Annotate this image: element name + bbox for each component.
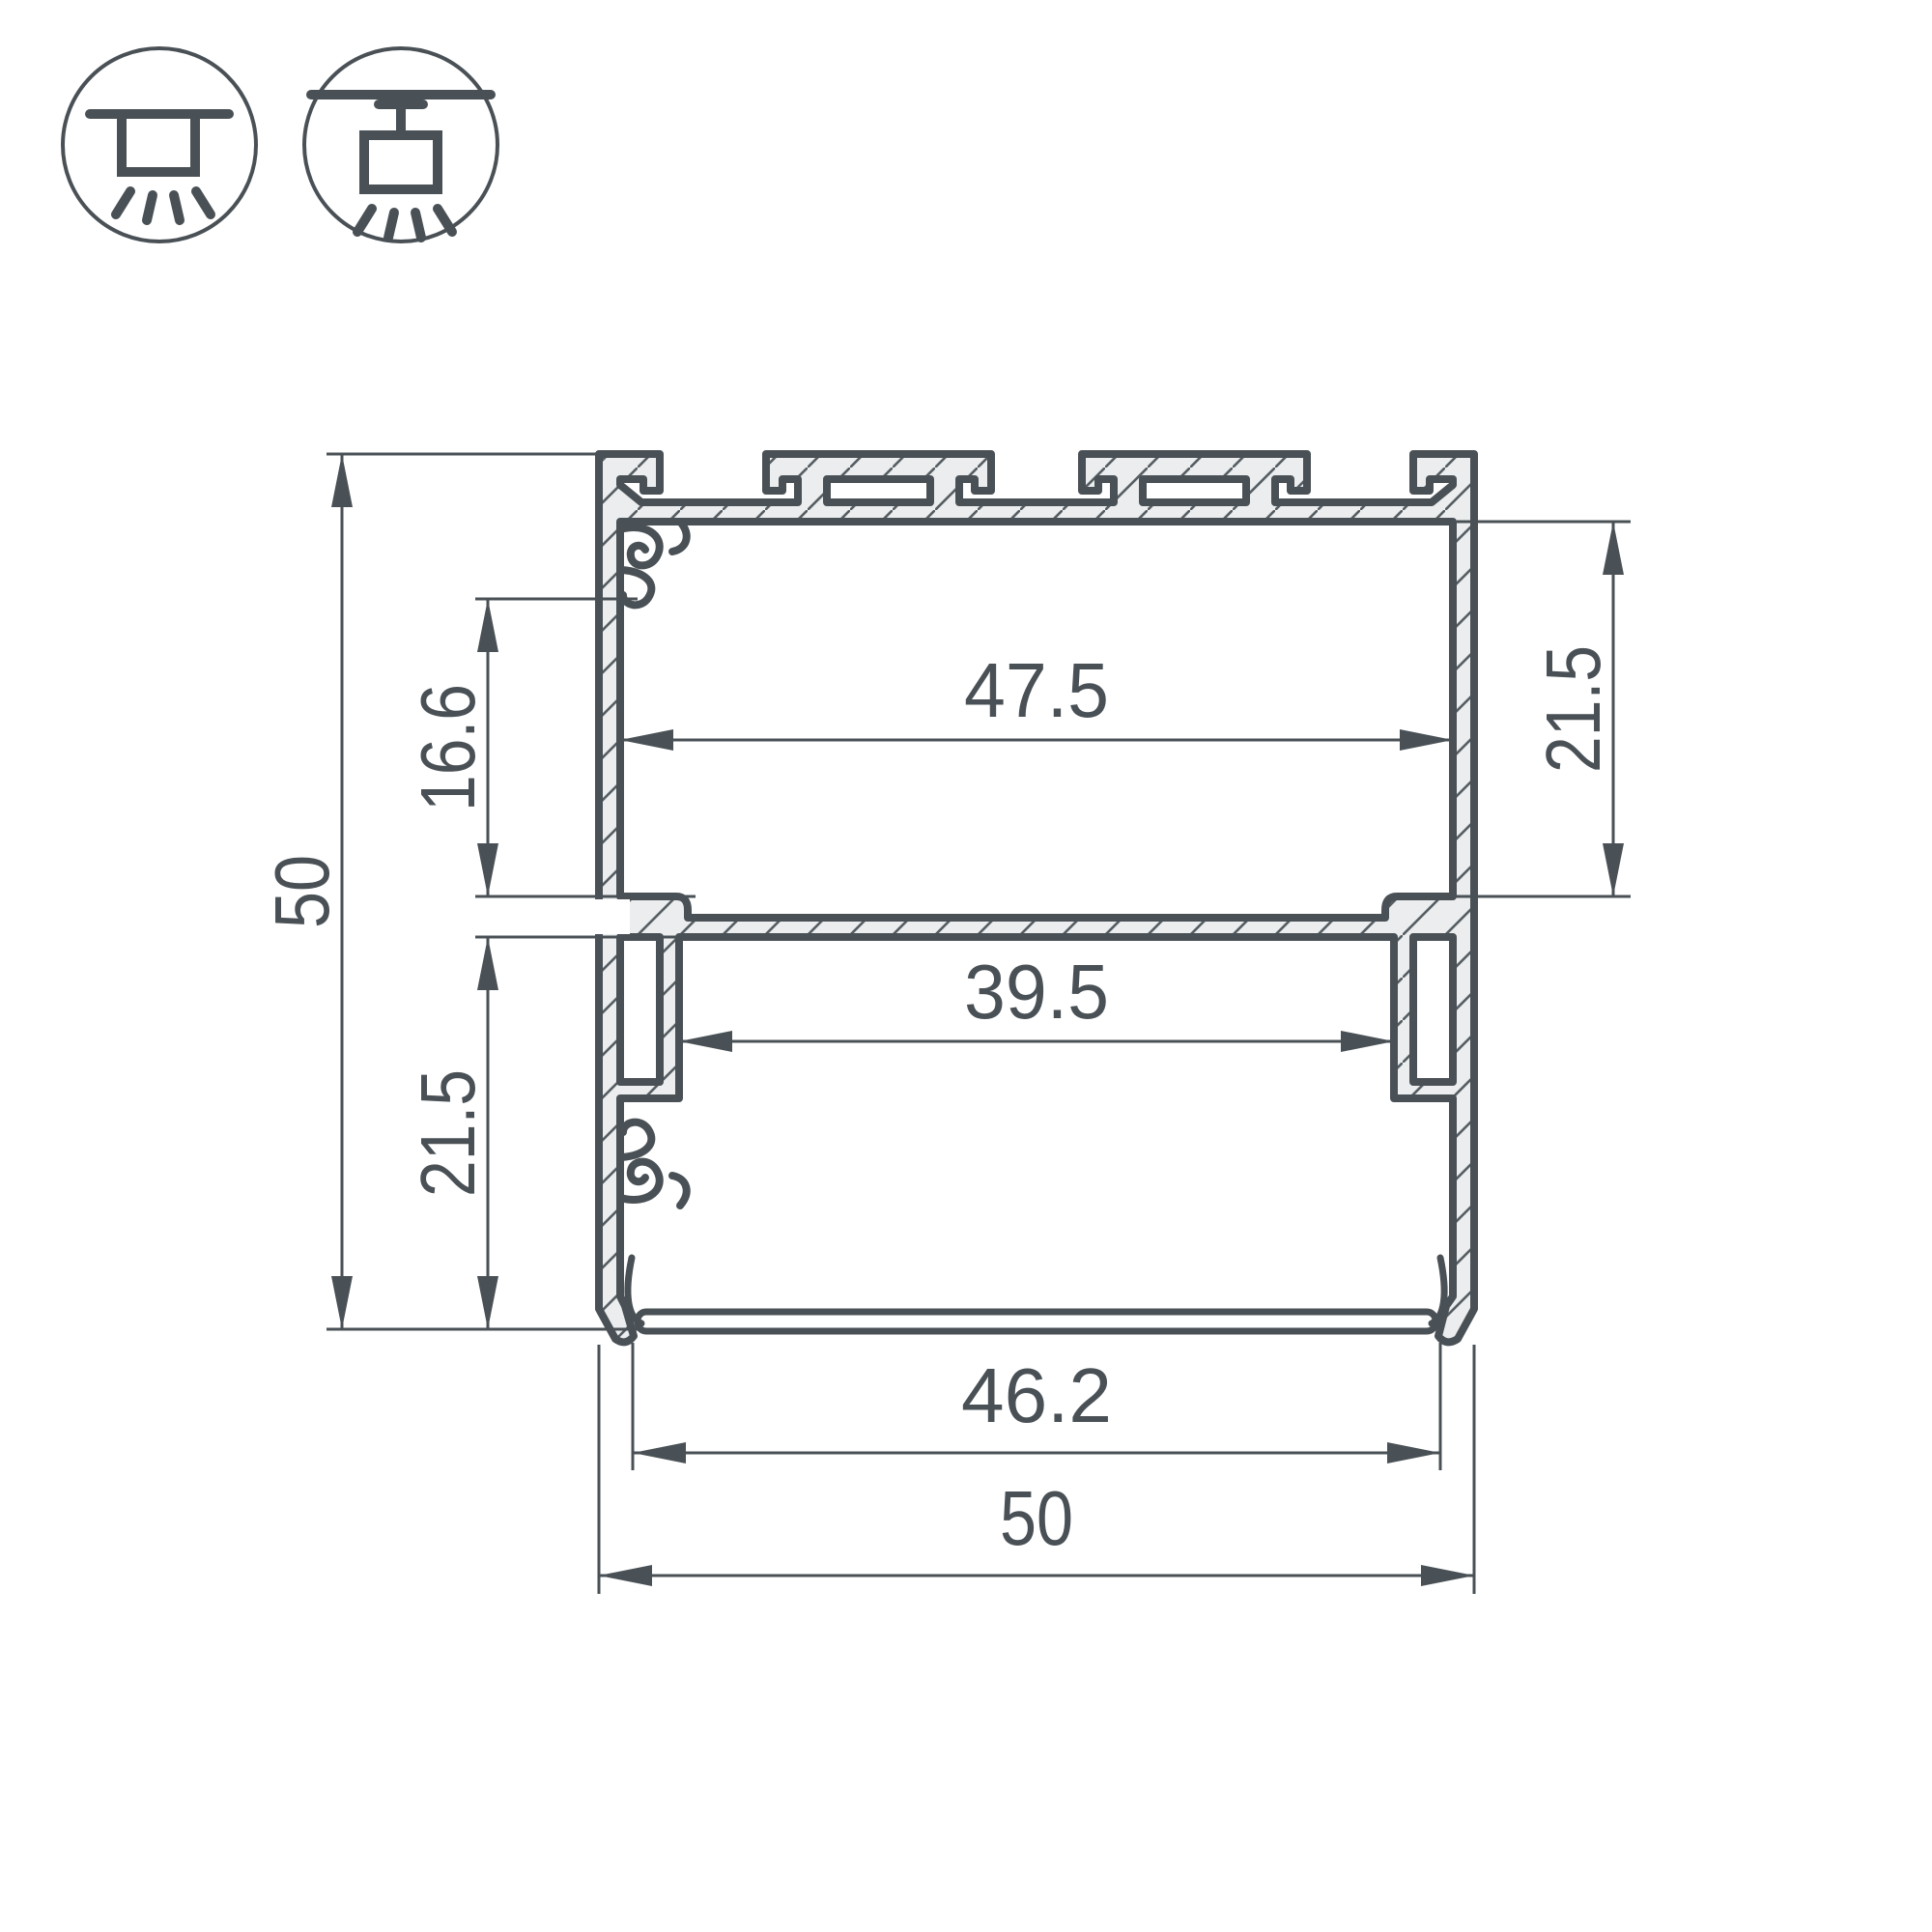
luminaire-box [364, 135, 438, 189]
arrowhead-down [1603, 843, 1624, 896]
dim-label-cavity-height: 21.5 [1530, 645, 1616, 773]
arrowhead-down [331, 1276, 353, 1329]
pendant-mount-icon [304, 48, 497, 241]
dim-label-overall-height: 50 [259, 855, 345, 928]
clip-curl-bottom-left [620, 1122, 687, 1206]
technical-drawing-page: 50 16.6 21.5 47.5 [0, 0, 1932, 1932]
arrowhead-left [599, 1565, 652, 1586]
arrowhead-left [679, 1031, 732, 1052]
profile-body [589, 454, 1932, 1342]
dim-overall-height: 50 [259, 454, 645, 1329]
wall-break-band [589, 899, 630, 934]
arrowhead-right [1421, 1565, 1474, 1586]
dim-inner-width-lower: 39.5 [679, 949, 1394, 1057]
profile-cross-section [599, 454, 1474, 1342]
dim-upper-inset-left: 16.6 [405, 599, 696, 896]
arrowhead-right [1400, 729, 1453, 751]
arrowhead-left [620, 729, 673, 751]
dim-inner-width-top: 47.5 [620, 647, 1453, 751]
dimension-annotations: 50 16.6 21.5 47.5 [259, 454, 1631, 1594]
arrowhead-right [1341, 1031, 1394, 1052]
profile-drawing-canvas: 50 16.6 21.5 47.5 [0, 0, 1932, 1932]
arrowhead-down [477, 843, 498, 896]
arrowhead-down [477, 1276, 498, 1329]
luminaire-box [122, 114, 195, 172]
dim-cavity-height-right: 21.5 [1399, 522, 1631, 896]
arrowhead-up [1603, 522, 1624, 575]
dim-diffuser-width: 46.2 [633, 1343, 1440, 1470]
dim-label-overall-width: 50 [1000, 1475, 1073, 1561]
arrowhead-up [477, 599, 498, 652]
arrowhead-up [331, 454, 353, 507]
dim-label-inner-width-lower: 39.5 [964, 949, 1109, 1035]
dim-label-inner-width-top: 47.5 [964, 647, 1109, 733]
dim-label-lower-height: 21.5 [405, 1069, 491, 1197]
arrowhead-up [477, 937, 498, 990]
dim-label-upper-inset: 16.6 [405, 684, 491, 811]
clip-curl-top-left [620, 522, 687, 605]
mounting-icons [63, 48, 497, 241]
diffuser-plate [638, 1312, 1435, 1331]
arrowhead-left [633, 1442, 686, 1463]
arrowhead-right [1387, 1442, 1440, 1463]
dim-label-diffuser-width: 46.2 [961, 1352, 1112, 1438]
surface-mount-icon [63, 48, 256, 241]
